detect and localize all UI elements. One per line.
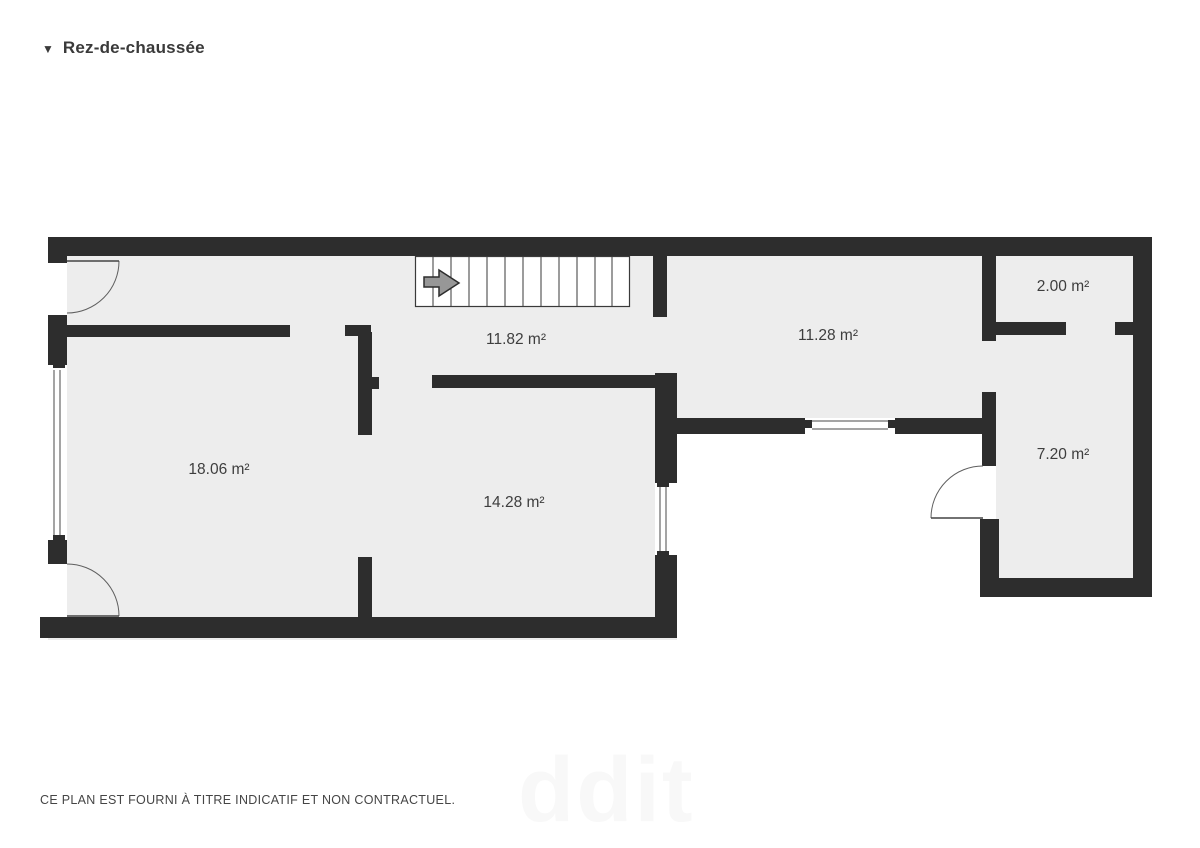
wall-segment — [982, 392, 996, 466]
wall-segment — [1115, 322, 1133, 335]
window-end-cap — [657, 483, 669, 487]
wall-segment — [48, 540, 67, 564]
watermark: ddit — [518, 738, 695, 843]
room-area-label: 11.28 m² — [798, 327, 858, 345]
window-end-cap — [657, 551, 669, 555]
wall-segment — [1133, 237, 1152, 597]
door-opening — [48, 263, 67, 315]
wall-segment — [996, 322, 1066, 335]
room-area-label: 7.20 m² — [1037, 446, 1090, 464]
window — [805, 418, 895, 434]
wall-segment — [653, 256, 667, 317]
wall-segment — [982, 248, 996, 341]
wall-segment — [67, 325, 290, 337]
window-end-cap — [805, 420, 812, 428]
door-opening — [48, 564, 67, 617]
wall-segment — [655, 555, 677, 638]
wall-segment — [358, 332, 372, 435]
window-end-cap — [888, 420, 895, 428]
window-end-cap — [53, 363, 65, 368]
window — [48, 365, 67, 540]
door-opening — [980, 466, 996, 519]
room-area-label: 2.00 m² — [1037, 278, 1090, 296]
disclaimer-text: CE PLAN EST FOURNI À TITRE INDICATIF ET … — [40, 793, 455, 807]
wall-segment — [432, 375, 657, 388]
room-area-label: 11.82 m² — [486, 331, 546, 349]
wall-segment — [370, 377, 379, 389]
floorplan-svg — [0, 0, 1200, 848]
floorplan-page: ▼ Rez-de-chaussée 18.06 m²14.28 m²11.82 … — [0, 0, 1200, 848]
wall-segment — [48, 315, 67, 365]
wall-segment — [672, 418, 805, 434]
room-area-label: 14.28 m² — [483, 494, 544, 512]
window-end-cap — [53, 535, 65, 540]
wall-segment — [980, 578, 1152, 597]
door-swing-arc — [931, 466, 983, 518]
wall-segment — [358, 557, 372, 622]
room-area-label: 18.06 m² — [188, 461, 249, 479]
wall-segment — [48, 237, 67, 263]
wall-segment — [895, 418, 990, 434]
